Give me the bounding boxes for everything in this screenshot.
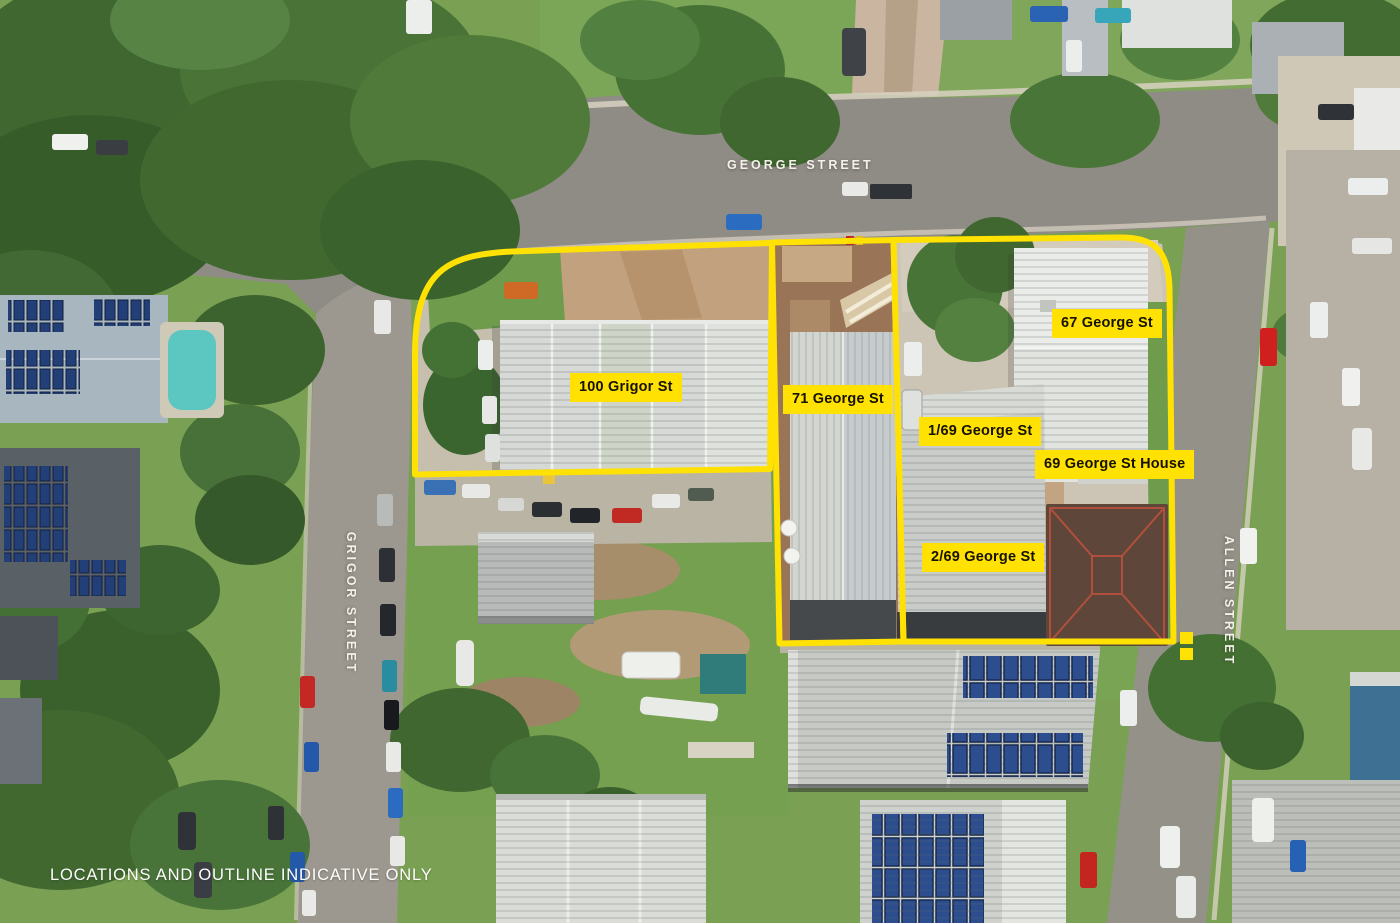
house-left-solar [0, 295, 168, 423]
house-69-george [1046, 504, 1168, 646]
building-71-george [781, 332, 896, 640]
shed-small [478, 532, 594, 624]
parcel-label-2-69-george-st: 2/69 George St [922, 543, 1044, 572]
swimming-pool [168, 330, 216, 410]
parcel-label-71-george-st: 71 George St [783, 385, 893, 414]
parcel-label-100-grigor-st: 100 Grigor St [570, 373, 682, 402]
street-label-george: GEORGE STREET [727, 158, 874, 172]
street-label-allen: ALLEN STREET [1222, 536, 1236, 666]
building-bottom-centre [496, 794, 706, 923]
warehouse-bottom-solar [788, 650, 1100, 792]
street-label-grigor: GRIGOR STREET [344, 532, 358, 674]
parcel-label-1-69-george-st: 1/69 George St [919, 417, 1041, 446]
blue-building [1350, 686, 1400, 786]
house-left-dark [0, 448, 140, 608]
building-bottom-right [860, 800, 1066, 923]
parcel-label-67-george-st: 67 George St [1052, 309, 1162, 338]
disclaimer-text: LOCATIONS AND OUTLINE INDICATIVE ONLY [50, 866, 433, 885]
aerial-photo-stage: GEORGE STREET GRIGOR STREET ALLEN STREET… [0, 0, 1400, 923]
parcel-label-69-george-st-house: 69 George St House [1035, 450, 1194, 479]
building-far-bottom-right [1232, 780, 1400, 923]
